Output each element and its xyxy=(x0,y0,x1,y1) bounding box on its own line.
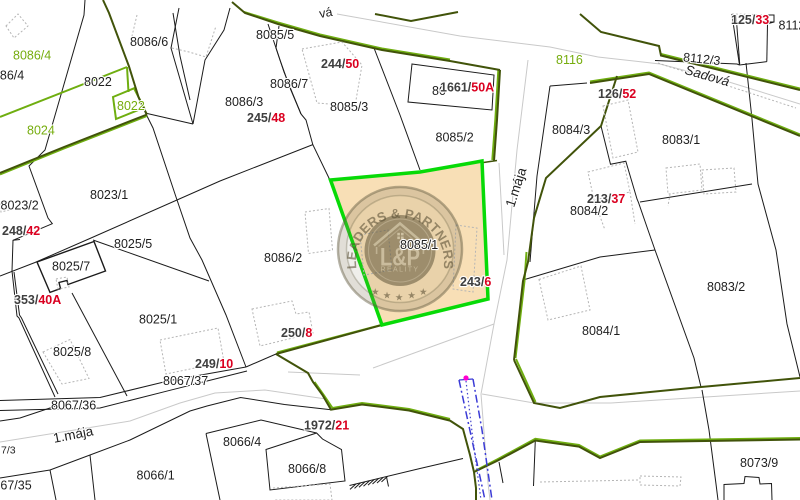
svg-text:245/48: 245/48 xyxy=(247,111,285,125)
svg-text:244/50: 244/50 xyxy=(321,57,359,71)
svg-text:vá: vá xyxy=(318,5,333,21)
svg-text:8025/1: 8025/1 xyxy=(139,313,177,327)
svg-text:REALITY: REALITY xyxy=(381,266,420,273)
svg-text:★: ★ xyxy=(407,291,416,302)
svg-text:243/6: 243/6 xyxy=(460,275,491,289)
svg-text:8083/1: 8083/1 xyxy=(662,133,700,147)
svg-text:8086/4: 8086/4 xyxy=(13,49,51,63)
svg-text:8112: 8112 xyxy=(779,19,800,33)
svg-text:8084/3: 8084/3 xyxy=(552,123,590,137)
svg-text:8067/37: 8067/37 xyxy=(163,374,208,388)
svg-text:8086/2: 8086/2 xyxy=(264,251,302,265)
svg-text:8024: 8024 xyxy=(27,124,55,138)
svg-text:8085/3: 8085/3 xyxy=(330,100,368,114)
svg-text:8083/2: 8083/2 xyxy=(707,280,745,294)
svg-text:250/8: 250/8 xyxy=(281,326,312,340)
svg-text:213/37: 213/37 xyxy=(587,192,625,206)
svg-text:8085/2: 8085/2 xyxy=(436,131,474,145)
svg-text:★: ★ xyxy=(383,291,392,302)
svg-text:8025/7: 8025/7 xyxy=(52,260,90,274)
svg-text:★: ★ xyxy=(371,287,380,298)
svg-text:8086/3: 8086/3 xyxy=(225,95,263,109)
svg-text:8023/2: 8023/2 xyxy=(1,199,39,213)
svg-text:★: ★ xyxy=(419,287,428,298)
svg-text:8073/9: 8073/9 xyxy=(740,456,778,470)
svg-text:8023/1: 8023/1 xyxy=(90,188,128,202)
svg-text:126/52: 126/52 xyxy=(598,87,636,101)
svg-text:8022: 8022 xyxy=(117,99,145,113)
svg-text:8066/8: 8066/8 xyxy=(288,462,326,476)
svg-text:8085/1: 8085/1 xyxy=(400,238,438,252)
svg-text:7/3: 7/3 xyxy=(1,445,16,457)
svg-text:8067/36: 8067/36 xyxy=(51,399,96,413)
svg-text:★: ★ xyxy=(395,292,404,303)
svg-text:353/40A: 353/40A xyxy=(14,293,61,307)
svg-text:8025/5: 8025/5 xyxy=(114,237,152,251)
svg-text:8067/35: 8067/35 xyxy=(0,479,32,493)
svg-text:249/10: 249/10 xyxy=(195,357,233,371)
svg-text:8084/1: 8084/1 xyxy=(582,324,620,338)
svg-text:125/33: 125/33 xyxy=(731,13,769,27)
svg-text:8086/6: 8086/6 xyxy=(130,35,168,49)
svg-text:1661/50A: 1661/50A xyxy=(440,81,494,95)
svg-text:8084/2: 8084/2 xyxy=(570,204,608,218)
svg-text:8116: 8116 xyxy=(556,53,583,67)
svg-text:8022: 8022 xyxy=(84,75,112,89)
svg-text:1972/21: 1972/21 xyxy=(304,419,349,433)
svg-text:8086/7: 8086/7 xyxy=(270,77,308,91)
svg-text:248/42: 248/42 xyxy=(2,224,40,238)
svg-text:8086/4: 8086/4 xyxy=(0,69,24,83)
svg-text:8066/1: 8066/1 xyxy=(137,469,175,483)
svg-text:8085/5: 8085/5 xyxy=(256,28,294,42)
svg-text:8066/4: 8066/4 xyxy=(223,435,261,449)
svg-text:8025/8: 8025/8 xyxy=(53,345,91,359)
